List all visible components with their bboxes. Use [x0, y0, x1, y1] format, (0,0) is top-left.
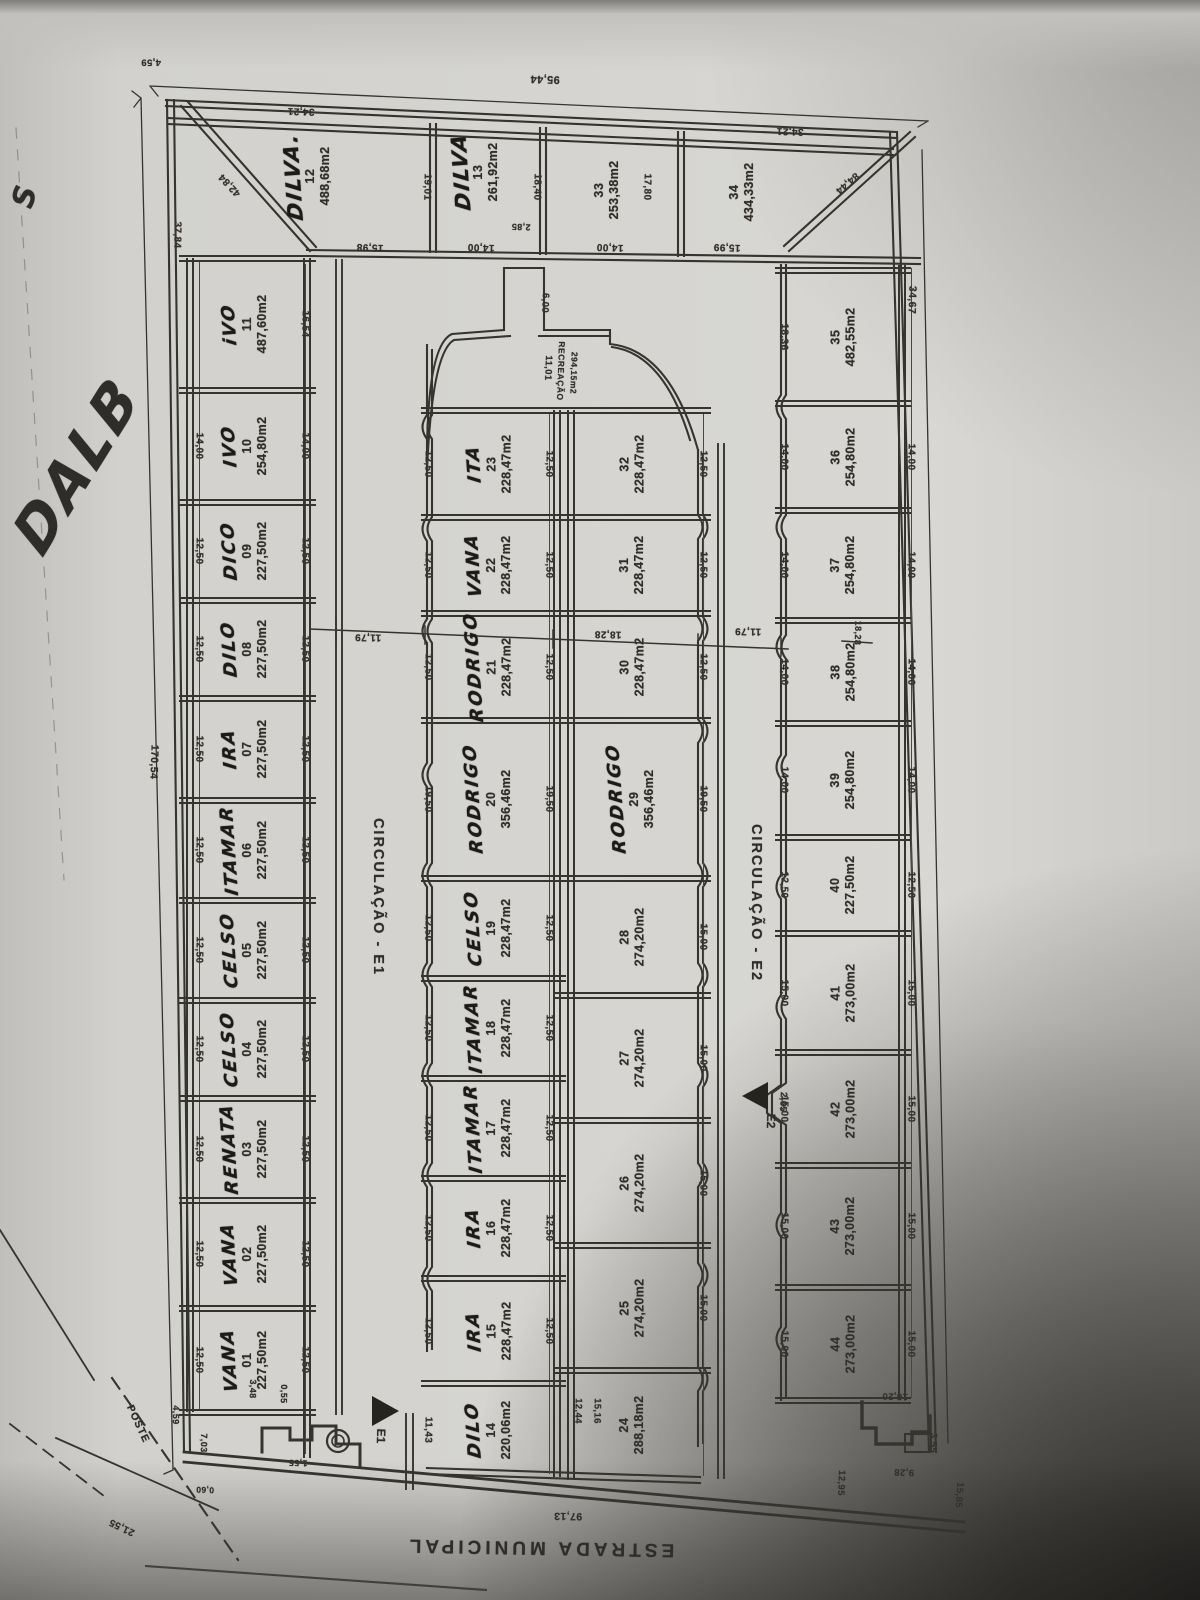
lot-area: 356,46m2 — [499, 770, 514, 829]
dim-label: 12,50 — [543, 450, 554, 477]
boundary-line — [573, 410, 575, 1480]
lot-name: DICO — [218, 521, 242, 582]
lot-area: 228,47m2 — [499, 536, 514, 595]
dim-label: 15,98 — [356, 241, 383, 253]
dim-label: 11,79 — [735, 625, 762, 636]
lot-area: 227,50m2 — [255, 522, 270, 581]
lot-number: 14 — [484, 1422, 499, 1437]
dim-label: 18,36 — [778, 323, 789, 350]
dim-label: 15,00 — [778, 1330, 789, 1357]
lot-number: 35 — [828, 329, 843, 344]
lot-area: 273,00m2 — [843, 1314, 858, 1373]
e2-marker-label: E2 — [764, 1113, 779, 1128]
dim-label: 14,00 — [778, 766, 789, 793]
lot-area: 434,33m2 — [742, 163, 757, 222]
lot-number: 19 — [484, 920, 499, 935]
lot-number: 40 — [828, 877, 843, 892]
lot-label: DILVA.12488,68m2 — [283, 101, 333, 251]
lot-name: VANA — [218, 1327, 242, 1393]
lot-number: 28 — [617, 929, 632, 944]
dim-label: 12,50 — [422, 551, 433, 578]
dim-label: 15,16 — [591, 1398, 602, 1424]
dim-label: 4,59 — [141, 57, 161, 68]
lot-area: 487,60m2 — [255, 295, 270, 354]
dim-label: 12,50 — [543, 653, 554, 680]
lot-label: VANA01227,50m2 — [220, 1283, 270, 1437]
dim-label: 12,50 — [193, 1035, 204, 1062]
lot-number: 33 — [592, 182, 607, 197]
lot-name: RODRIGO — [460, 743, 488, 855]
lot-area: 254,80m2 — [843, 642, 858, 701]
lot-area: 227,50m2 — [255, 921, 270, 980]
dim-label: 15,00 — [905, 979, 916, 1006]
dim-label: 14,00 — [905, 443, 916, 470]
lot-name: DILO — [462, 1401, 486, 1459]
dim-label: 12,50 — [299, 1346, 310, 1373]
inner-left-scallop-2 — [428, 350, 433, 1349]
dim-label: 11,43 — [422, 1417, 433, 1444]
dim-label: 12,50 — [422, 1317, 433, 1344]
lot-number: 36 — [828, 449, 843, 464]
dim-label: 12,50 — [422, 1214, 433, 1241]
lot-number: 39 — [828, 772, 843, 787]
lot-name: DILVA — [448, 132, 473, 212]
lot-area: 228,47m2 — [632, 536, 647, 595]
dim-label: 15,00 — [697, 1044, 708, 1071]
lot-number: 10 — [240, 438, 255, 453]
dim-label: 0,55 — [279, 1384, 289, 1403]
dim-label: 17,80 — [641, 173, 652, 200]
dim-label: 6,00 — [539, 293, 551, 313]
dim-label: 14,00 — [299, 432, 310, 459]
dim-label: 37,84 — [171, 221, 182, 248]
lot-number: 34 — [727, 184, 742, 199]
dim-label: 12,50 — [697, 551, 708, 578]
dim-label: 16,54 — [299, 310, 310, 337]
dim-label: 19,01 — [421, 173, 432, 200]
lot-area: 274,20m2 — [632, 1028, 647, 1087]
recreacao-area: 294,15m2 — [568, 352, 579, 395]
e2-arrow — [742, 1082, 768, 1110]
lot-name: ITA — [463, 444, 486, 484]
dim-label: 12,50 — [543, 551, 554, 578]
lot-area: 227,50m2 — [255, 1120, 270, 1179]
dim-label: 12,50 — [778, 871, 789, 898]
lot-area: 254,80m2 — [843, 427, 858, 486]
lot-number: 11 — [240, 317, 255, 331]
lot-number: 16 — [484, 1220, 499, 1235]
lot-number: 02 — [240, 1246, 255, 1261]
dim-label: 15,00 — [905, 1095, 916, 1122]
lot-number: 08 — [240, 641, 255, 656]
lot-number: 20 — [484, 791, 499, 806]
lot-number: 29 — [627, 791, 642, 806]
lot-area: 254,80m2 — [843, 536, 858, 595]
section-line — [310, 622, 872, 656]
lot-number: 30 — [617, 659, 632, 674]
lot-number: 24 — [617, 1417, 632, 1432]
dim-label: 12,50 — [299, 537, 310, 564]
dashed-road-line-2 — [10, 1424, 104, 1496]
lot-area: 274,20m2 — [632, 907, 647, 966]
lot-area: 227,50m2 — [255, 620, 270, 679]
lot-area: 227,50m2 — [843, 856, 858, 915]
lot-area: 273,00m2 — [843, 1197, 858, 1256]
dim-label: 12,50 — [422, 1014, 433, 1041]
boundary-line — [186, 258, 188, 1412]
dim-label: 34,21 — [776, 125, 803, 137]
dim-label: 12,50 — [193, 1135, 204, 1162]
lot-number: 25 — [617, 1300, 632, 1315]
e2-corridor — [718, 444, 724, 1478]
poste-circle — [327, 1430, 349, 1452]
lot-area: 482,55m2 — [843, 307, 858, 366]
lot-number: 32 — [617, 456, 632, 471]
dim-label: 0,60 — [196, 1485, 214, 1496]
dim-label: 18,40 — [531, 173, 542, 200]
dim-label: 12,50 — [193, 537, 204, 564]
lot-area: 254,80m2 — [843, 751, 858, 810]
lot-area: 227,50m2 — [255, 720, 270, 779]
e1-arrow — [372, 1396, 399, 1426]
lot-number: 06 — [240, 842, 255, 857]
lot-number: 17 — [484, 1120, 499, 1135]
lot-number: 05 — [240, 942, 255, 957]
circulacao-e1-label: CIRCULAÇÃO - E1 — [370, 818, 386, 976]
dim-label: 14,00 — [778, 443, 789, 470]
dim-label: 97,13 — [554, 1510, 582, 1522]
dim-label: 15,00 — [778, 979, 789, 1006]
lot-area: 356,46m2 — [642, 770, 657, 829]
dim-label: 12,50 — [543, 1014, 554, 1041]
inner-left-scallop — [423, 345, 428, 1351]
dim-label: 15,00 — [697, 923, 708, 950]
lot-name: DILO — [218, 620, 242, 678]
dim-label: 14,00 — [193, 432, 204, 459]
lot-area: 253,38m2 — [607, 161, 622, 220]
lot-number: 38 — [828, 664, 843, 679]
dim-label: 34,67 — [906, 286, 919, 315]
boundary-line — [559, 410, 561, 1477]
dim-label: 9,28 — [894, 1466, 914, 1478]
lot-name: RODRIGO — [603, 743, 631, 855]
dim-label: 14,00 — [905, 766, 916, 793]
dim-label: 14,00 — [905, 551, 916, 578]
dim-label: 12,50 — [299, 836, 310, 863]
boundary-line — [192, 258, 194, 1412]
lot-name: IRA — [463, 1206, 486, 1249]
structure-bottom-right — [862, 1402, 930, 1444]
lot-name: IVO — [219, 424, 242, 468]
dim-label: 170,54 — [147, 745, 160, 780]
circulacao-e2-label: CIRCULAÇÃO - E2 — [748, 824, 764, 982]
lot-number: 22 — [484, 557, 499, 572]
lot-area: 227,50m2 — [255, 821, 270, 880]
handwritten-corner-letter: S — [13, 182, 38, 210]
dim-label: 12,50 — [193, 735, 204, 762]
dim-label: 2,65 — [777, 1092, 789, 1112]
lot-label: 33253,38m2 — [592, 115, 622, 265]
lot-number: 37 — [828, 557, 843, 572]
dim-label: 19,50 — [422, 785, 433, 812]
dim-label: 12,50 — [299, 936, 310, 963]
lot-label: 44273,00m2 — [828, 1262, 858, 1425]
diagonal-top-right — [784, 132, 915, 251]
lot-number: 15 — [484, 1323, 499, 1338]
lot-area: 228,47m2 — [632, 434, 647, 493]
lot-number: 42 — [828, 1101, 843, 1116]
lot-area: 227,50m2 — [255, 1020, 270, 1079]
dim-label: 11,79 — [355, 631, 382, 642]
dim-label: 12,50 — [299, 735, 310, 762]
dim-label: 12,50 — [193, 936, 204, 963]
lot-label: DILO14220,06m2 — [464, 1358, 514, 1502]
dim-label: 15,00 — [697, 1294, 708, 1321]
lot-area: 220,06m2 — [499, 1401, 514, 1460]
lot-number: 44 — [828, 1336, 843, 1351]
lot-area: 228,47m2 — [499, 1099, 514, 1158]
dim-label: 12,50 — [543, 914, 554, 941]
dim-label: 12,50 — [299, 1135, 310, 1162]
dim-label: 14,00 — [905, 658, 916, 685]
lot-area: 254,80m2 — [255, 417, 270, 476]
lot-area: 488,68m2 — [318, 147, 333, 206]
lot-area: 273,00m2 — [843, 1079, 858, 1138]
lot-number: 01 — [240, 1352, 255, 1367]
dim-label: 12,50 — [299, 635, 310, 662]
lot-label: DILVA13261,92m2 — [451, 97, 501, 247]
dim-label: 12,50 — [193, 836, 204, 863]
lot-number: 43 — [828, 1218, 843, 1233]
dim-label: 12,50 — [905, 871, 916, 898]
dim-label: 1,55 — [288, 1458, 307, 1469]
dim-label: 12,50 — [543, 1317, 554, 1344]
dim-label: 3,55 — [927, 1433, 939, 1453]
dim-label: 12,50 — [543, 1214, 554, 1241]
dim-label: 12,50 — [543, 1114, 554, 1141]
dim-label: 12,50 — [193, 1346, 204, 1373]
lot-number: 27 — [617, 1050, 632, 1065]
lot-label: 34434,33m2 — [727, 117, 757, 267]
lot-area: 228,47m2 — [499, 1199, 514, 1258]
dim-label: 12,50 — [193, 635, 204, 662]
dim-label: 4,59 — [171, 1405, 181, 1424]
plan: ESTRADA MUNICIPAL CIRCULAÇÃO - E1 CIRCUL… — [0, 0, 1200, 1600]
dim-label: 15,00 — [905, 1212, 916, 1239]
dim-label: 95,44 — [530, 72, 560, 85]
dim-label: 15,00 — [778, 1212, 789, 1239]
lot-area: 228,47m2 — [632, 637, 647, 696]
dim-label: 12,50 — [299, 1240, 310, 1267]
dim-label: 2,85 — [511, 222, 530, 233]
band-top — [168, 118, 893, 155]
lot-name: IRA — [463, 1309, 486, 1352]
dim-label: 12,50 — [422, 914, 433, 941]
lot-label: 24288,18m2 — [617, 1345, 647, 1505]
lot-number: 09 — [240, 543, 255, 558]
dim-label: 11,01 — [542, 355, 554, 381]
boundary-line — [898, 265, 900, 1400]
lot-area: 288,18m2 — [632, 1396, 647, 1455]
road-far-edge — [146, 1566, 486, 1590]
lot-number: 31 — [617, 557, 632, 572]
scanned-plat-photo: ESTRADA MUNICIPAL CIRCULAÇÃO - E1 CIRCUL… — [0, 0, 1200, 1600]
dim-label: 12,50 — [422, 653, 433, 680]
dim-label: 15,85 — [953, 1482, 966, 1508]
dim-label: 19,50 — [697, 785, 708, 812]
e1-marker-label: E1 — [374, 1428, 389, 1443]
dim-label: 12,50 — [299, 1035, 310, 1062]
dim-label: 14,00 — [778, 658, 789, 685]
dim-label: 12,50 — [193, 1240, 204, 1267]
lot-area: 228,47m2 — [499, 999, 514, 1058]
dim-label: 12,50 — [422, 450, 433, 477]
dim-label: 12,50 — [422, 1114, 433, 1141]
lot-area: 227,50m2 — [255, 1331, 270, 1390]
dim-label: 19,50 — [543, 785, 554, 812]
lot-area: 228,47m2 — [499, 637, 514, 696]
recreacao-label: RECREAÇÃO — [555, 341, 567, 401]
lot-number: 03 — [240, 1141, 255, 1156]
lot-number: 41 — [828, 985, 843, 1000]
estrada-municipal-label: ESTRADA MUNICIPAL — [406, 1534, 675, 1561]
lot-area: 228,47m2 — [499, 1301, 514, 1360]
lot-number: 23 — [484, 456, 499, 471]
lot-area: 227,50m2 — [255, 1225, 270, 1284]
lot-name: iVO — [219, 302, 242, 346]
dim-label: 15,00 — [905, 1330, 916, 1357]
dim-label: 12,95 — [835, 1470, 847, 1496]
boundary-line — [567, 410, 569, 1480]
dim-label: 12,44 — [572, 1398, 583, 1424]
lot-area: 228,47m2 — [499, 899, 514, 958]
lot-name: IRA — [219, 727, 242, 770]
dim-label: 14,00 — [778, 551, 789, 578]
lot-area: 274,20m2 — [632, 1153, 647, 1212]
dim-label: 12,50 — [697, 653, 708, 680]
lot-number: 18 — [484, 1020, 499, 1035]
lot-area: 228,47m2 — [499, 434, 514, 493]
lot-area: 273,00m2 — [843, 963, 858, 1022]
lot-area: 261,92m2 — [486, 143, 501, 202]
lot-number: 26 — [617, 1175, 632, 1190]
lot-name: VANA — [218, 1221, 242, 1287]
dim-label: 12,50 — [697, 450, 708, 477]
dim-label: 15,00 — [697, 1169, 708, 1196]
lot-number: 04 — [240, 1041, 255, 1056]
dim-label: 7,03 — [199, 1433, 209, 1452]
lot-number: 21 — [484, 659, 499, 674]
dim-label: 16,20 — [882, 1390, 908, 1402]
lot-area: 274,20m2 — [632, 1278, 647, 1337]
lot-name: DILVA. — [280, 131, 306, 221]
lot-number: 07 — [240, 741, 255, 756]
